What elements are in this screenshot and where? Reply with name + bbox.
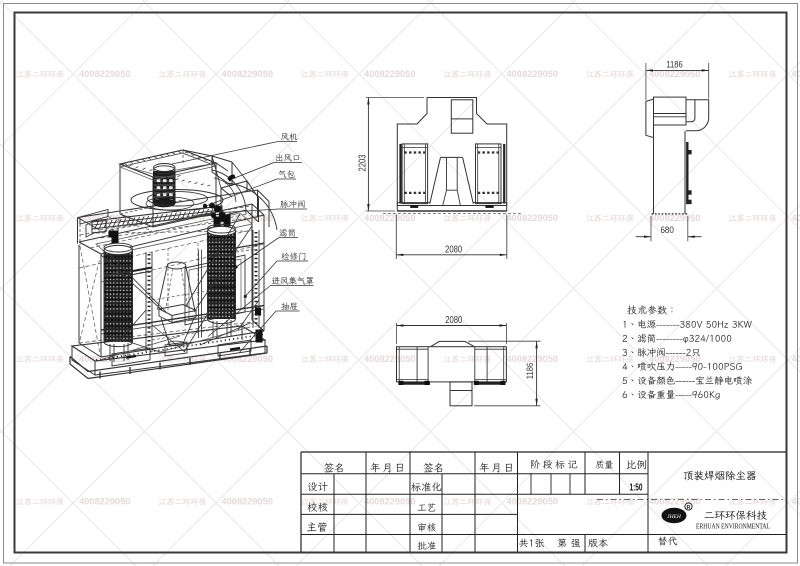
svg-text:4008229050: 4008229050 bbox=[507, 497, 559, 507]
svg-text:4008229050: 4008229050 bbox=[79, 69, 131, 79]
svg-text:2203: 2203 bbox=[358, 154, 369, 171]
svg-text:4008229050: 4008229050 bbox=[222, 497, 274, 507]
svg-text:4008229050: 4008229050 bbox=[507, 69, 559, 79]
svg-text:680: 680 bbox=[660, 225, 674, 236]
svg-text:4008229050: 4008229050 bbox=[222, 69, 274, 79]
svg-text:4008229050: 4008229050 bbox=[79, 497, 131, 507]
svg-text:4008229050: 4008229050 bbox=[507, 354, 559, 364]
svg-text:2080: 2080 bbox=[445, 244, 462, 255]
svg-text:4008229050: 4008229050 bbox=[507, 213, 559, 223]
svg-text:4008229050: 4008229050 bbox=[649, 497, 701, 507]
svg-text:4008229050: 4008229050 bbox=[792, 354, 800, 364]
svg-text:4008229050: 4008229050 bbox=[649, 354, 701, 364]
svg-text:R: R bbox=[687, 505, 691, 511]
svg-text:4008229050: 4008229050 bbox=[792, 497, 800, 507]
svg-text:4008229050: 4008229050 bbox=[792, 69, 800, 79]
svg-text:JHEH: JHEH bbox=[667, 514, 682, 520]
svg-text:4008229050: 4008229050 bbox=[649, 213, 701, 223]
svg-text:4008229050: 4008229050 bbox=[364, 354, 416, 364]
svg-text:4008229050: 4008229050 bbox=[364, 213, 416, 223]
svg-text:4008229050: 4008229050 bbox=[364, 69, 416, 79]
svg-text:ERHUAN ENVIRONMENTAL: ERHUAN ENVIRONMENTAL bbox=[696, 522, 770, 531]
svg-text:1186: 1186 bbox=[666, 60, 683, 71]
svg-text:1:50: 1:50 bbox=[630, 482, 643, 493]
svg-text:4008229050: 4008229050 bbox=[364, 497, 416, 507]
svg-text:1186: 1186 bbox=[525, 363, 536, 380]
svg-text:2080: 2080 bbox=[445, 315, 462, 326]
svg-text:4008229050: 4008229050 bbox=[792, 213, 800, 223]
